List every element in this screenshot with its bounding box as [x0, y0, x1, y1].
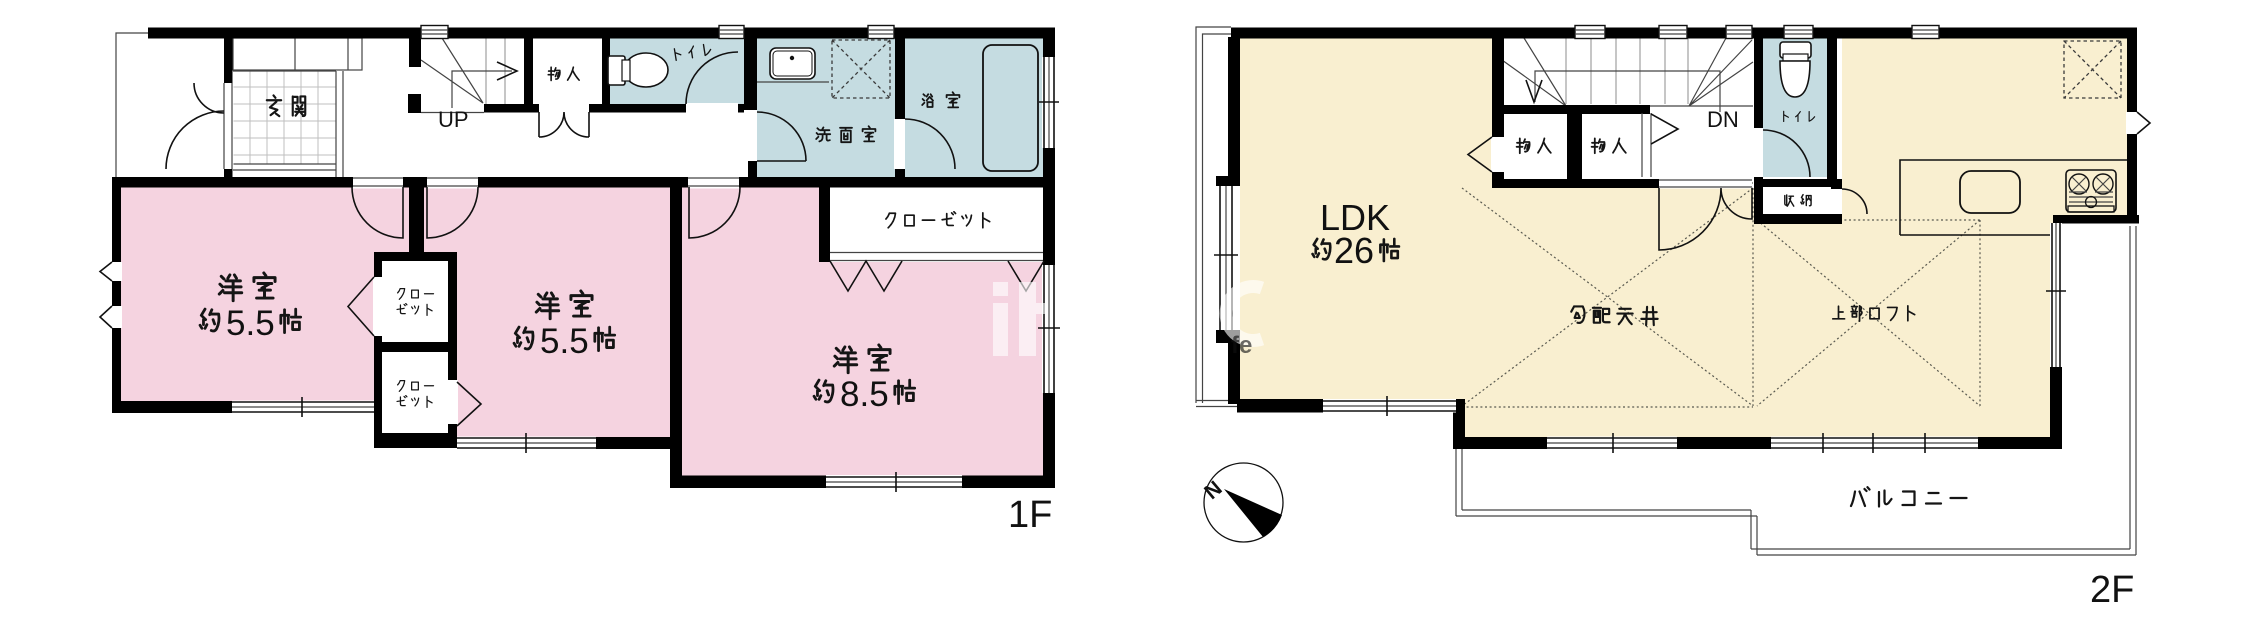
svg-text:2F: 2F	[2090, 569, 2134, 611]
svg-text:5.5: 5.5	[540, 322, 589, 361]
svg-text:DN: DN	[1707, 107, 1739, 132]
svg-text:8.5: 8.5	[840, 375, 889, 414]
svg-text:5.5: 5.5	[226, 304, 275, 343]
svg-text:fe: fe	[1231, 332, 1252, 359]
svg-text:UP: UP	[438, 107, 469, 132]
svg-text:26: 26	[1334, 230, 1374, 271]
svg-text:1F: 1F	[1008, 494, 1052, 536]
